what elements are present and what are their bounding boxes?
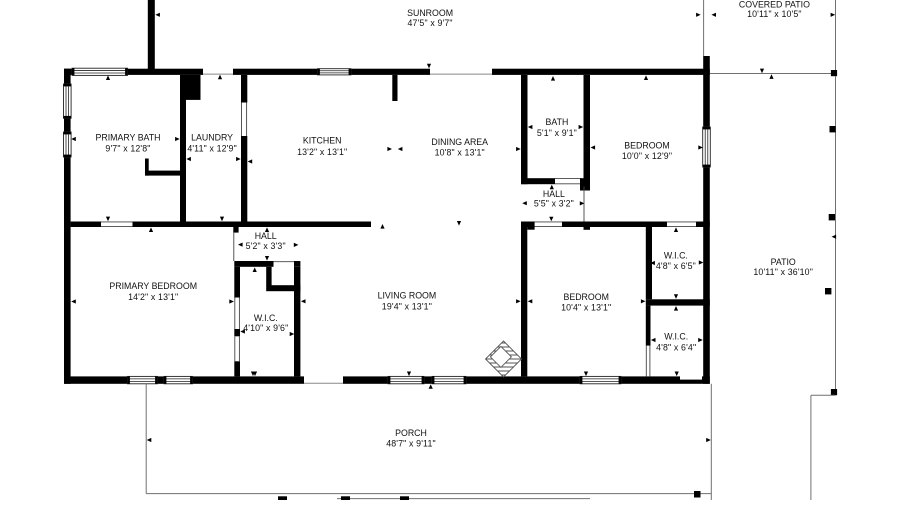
svg-text:KITCHEN: KITCHEN — [303, 136, 342, 146]
svg-text:HALL: HALL — [255, 231, 277, 241]
svg-text:PRIMARY BATH: PRIMARY BATH — [95, 133, 160, 143]
svg-text:PRIMARY BEDROOM: PRIMARY BEDROOM — [109, 281, 197, 291]
svg-text:SUNROOM: SUNROOM — [407, 8, 453, 18]
svg-text:10'8" x 13'1": 10'8" x 13'1" — [435, 147, 485, 157]
svg-text:9'7" x 12'8": 9'7" x 12'8" — [105, 143, 150, 153]
svg-text:LIVING ROOM: LIVING ROOM — [378, 290, 437, 300]
svg-text:4'11" x 12'9": 4'11" x 12'9" — [187, 143, 237, 153]
svg-text:5'1" x 9'1": 5'1" x 9'1" — [537, 128, 577, 138]
svg-text:W.I.C.: W.I.C. — [664, 251, 688, 261]
svg-text:4'10" x 9'6": 4'10" x 9'6" — [243, 323, 288, 333]
svg-text:LAUNDRY: LAUNDRY — [191, 133, 233, 143]
svg-text:10'4" x 13'1": 10'4" x 13'1" — [561, 302, 611, 312]
svg-text:W.I.C.: W.I.C. — [254, 313, 278, 323]
svg-text:BEDROOM: BEDROOM — [563, 292, 608, 302]
svg-text:19'4" x 13'1": 19'4" x 13'1" — [382, 301, 432, 311]
svg-text:13'2" x 13'1": 13'2" x 13'1" — [297, 147, 347, 157]
svg-text:10'11" x 10'5": 10'11" x 10'5" — [747, 9, 802, 19]
svg-text:4'8" x 6'5": 4'8" x 6'5" — [656, 261, 696, 271]
svg-text:5'5" x 3'2": 5'5" x 3'2" — [534, 199, 574, 209]
svg-text:4'8" x 6'4": 4'8" x 6'4" — [656, 343, 696, 353]
svg-text:14'2" x 13'1": 14'2" x 13'1" — [128, 292, 178, 302]
svg-text:BATH: BATH — [545, 117, 568, 127]
svg-text:47'5" x 9'7": 47'5" x 9'7" — [408, 18, 453, 28]
svg-text:10'11" x 36'10": 10'11" x 36'10" — [753, 267, 813, 277]
svg-text:DINING AREA: DINING AREA — [431, 137, 488, 147]
svg-text:COVERED PATIO: COVERED PATIO — [739, 0, 810, 9]
svg-text:5'2" x 3'3": 5'2" x 3'3" — [246, 241, 286, 251]
svg-text:BEDROOM: BEDROOM — [624, 141, 669, 151]
svg-text:PATIO: PATIO — [771, 257, 796, 267]
svg-text:PORCH: PORCH — [395, 428, 427, 438]
svg-text:10'0" x 12'9": 10'0" x 12'9" — [622, 151, 672, 161]
svg-text:W.I.C.: W.I.C. — [664, 332, 688, 342]
svg-text:48'7" x 9'11": 48'7" x 9'11" — [386, 439, 436, 449]
